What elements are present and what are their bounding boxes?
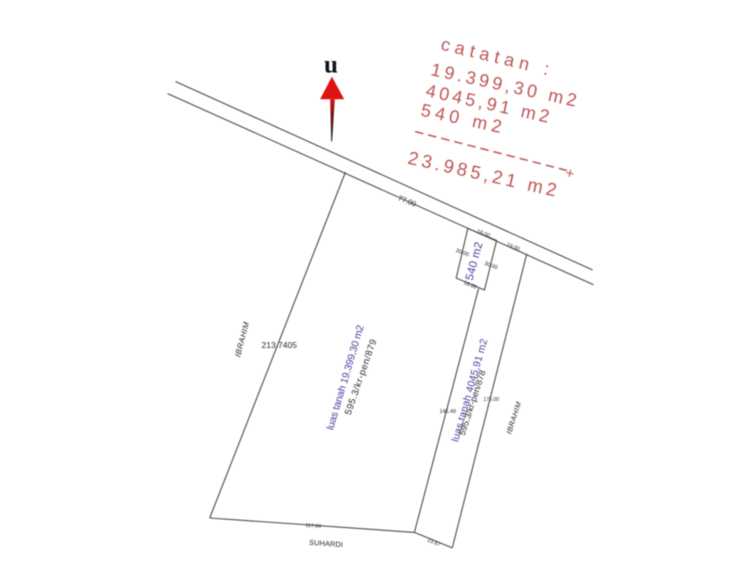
svg-text:145.49: 145.49 bbox=[440, 409, 457, 415]
svg-text:117.99: 117.99 bbox=[305, 523, 321, 530]
svg-text:213.7405: 213.7405 bbox=[262, 340, 298, 350]
svg-text:175.00: 175.00 bbox=[484, 397, 500, 403]
svg-text:u: u bbox=[324, 52, 338, 79]
